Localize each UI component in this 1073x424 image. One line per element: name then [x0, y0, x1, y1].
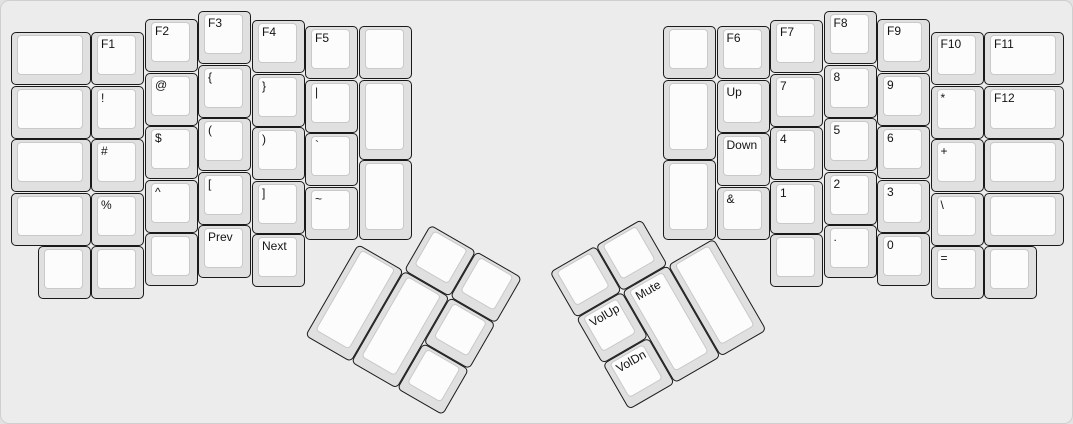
key-label: 0 [887, 237, 894, 253]
key-label: % [101, 197, 112, 213]
key-label: . [834, 229, 837, 245]
key-label: F12 [994, 90, 1015, 106]
keycap-face: [ [204, 175, 243, 215]
key-label: Prev [208, 229, 233, 245]
keycap-face [365, 83, 404, 150]
key-label: ~ [315, 191, 322, 207]
key-down[interactable]: Down [717, 133, 770, 186]
key-label: F2 [155, 23, 169, 39]
key-blank[interactable] [984, 193, 1064, 246]
key-f8[interactable]: F8 [824, 11, 877, 64]
keycap-face: 1 [776, 184, 815, 224]
key-label: 9 [887, 77, 894, 93]
key-blank[interactable] [359, 26, 412, 79]
key-backtick[interactable]: ` [305, 133, 358, 186]
key-label: ! [101, 90, 104, 106]
key-label: ( [208, 122, 212, 138]
keycap-face [669, 163, 708, 230]
keycap-face [17, 35, 83, 75]
key-f4[interactable]: F4 [252, 20, 305, 73]
keycap-face: ! [97, 89, 136, 129]
keycap-face: ^ [151, 183, 190, 223]
key-exclamation[interactable]: ! [91, 86, 144, 139]
key-label: F11 [994, 36, 1014, 52]
keycap-face: % [97, 196, 136, 236]
keycap-face: 6 [883, 129, 922, 169]
key-blank[interactable] [11, 32, 91, 85]
keycap-face: Prev [204, 228, 243, 268]
key-f10[interactable]: F10 [931, 32, 984, 85]
key-label: Up [727, 84, 742, 100]
keycap-face: F7 [776, 23, 815, 63]
key-label: 7 [780, 78, 787, 94]
key-at[interactable]: @ [145, 73, 198, 126]
key-label: F3 [208, 15, 222, 31]
keycap-face: \ [937, 196, 976, 236]
keycap-face: ( [204, 121, 243, 161]
keycap-face: 2 [830, 175, 869, 215]
keycap-face: * [937, 89, 976, 129]
keycap-face: 0 [883, 236, 922, 276]
keycap-face [990, 142, 1056, 182]
key-f1[interactable]: F1 [91, 32, 144, 85]
key-blank[interactable] [11, 86, 91, 139]
key-label: ` [315, 137, 319, 153]
key-blank-tall[interactable] [663, 160, 716, 240]
key-label: F10 [941, 36, 962, 52]
key-blank[interactable] [770, 234, 823, 287]
keycap-face [460, 257, 514, 311]
keycap-face [151, 236, 190, 276]
keycap-face: Down [723, 136, 762, 176]
key-left-bracket[interactable]: [ [198, 172, 251, 225]
key-tilde[interactable]: ~ [305, 187, 358, 240]
key-hash[interactable]: # [91, 139, 144, 192]
key-label: { [208, 69, 212, 85]
key-next[interactable]: Next [252, 234, 305, 287]
keycap-face [602, 226, 656, 280]
key-label: \ [941, 197, 944, 213]
keycap-face: 9 [883, 76, 922, 116]
keycap-face [365, 29, 404, 69]
key-label: Down [727, 137, 758, 153]
keycap-face: F11 [990, 35, 1056, 75]
keycap-face: ` [311, 136, 350, 176]
keycap-face: 4 [776, 130, 815, 170]
key-8[interactable]: 8 [824, 65, 877, 118]
key-right-bracket[interactable]: ] [252, 181, 305, 234]
keycap-face [990, 196, 1056, 236]
keycap-face: 7 [776, 77, 815, 117]
keycap-face: F5 [311, 29, 350, 69]
key-blank-tall[interactable] [359, 80, 412, 160]
key-blank[interactable] [145, 233, 198, 286]
keycap-face: ~ [311, 190, 350, 230]
key-6[interactable]: 6 [877, 126, 930, 179]
keycap-face [44, 249, 83, 289]
key-7[interactable]: 7 [770, 74, 823, 127]
key-2[interactable]: 2 [824, 172, 877, 225]
keycap-face: 5 [830, 121, 869, 161]
keycap-face: $ [151, 129, 190, 169]
keycap-face: F9 [883, 22, 922, 62]
key-1[interactable]: 1 [770, 181, 823, 234]
key-label: [ [208, 176, 211, 192]
key-label: Next [262, 238, 287, 254]
key-plus[interactable]: + [931, 139, 984, 192]
key-blank[interactable] [663, 26, 716, 79]
key-label: # [101, 143, 108, 159]
key-4[interactable]: 4 [770, 127, 823, 180]
key-f12[interactable]: F12 [984, 86, 1064, 139]
keycap-face: | [311, 83, 350, 123]
key-equals[interactable]: = [931, 246, 984, 299]
key-label: 1 [780, 185, 787, 201]
keycap-face: & [723, 190, 762, 230]
key-label: F8 [834, 15, 848, 31]
key-label: F6 [727, 30, 741, 46]
keycap-face [990, 249, 1029, 289]
keycap-face: # [97, 142, 136, 182]
keycap-face: { [204, 68, 243, 108]
keycap-face: F3 [204, 14, 243, 54]
key-asterisk[interactable]: * [931, 86, 984, 139]
keycap-face: . [830, 228, 869, 268]
key-label: @ [155, 77, 167, 93]
key-percent[interactable]: % [91, 193, 144, 246]
key-blank[interactable] [984, 139, 1064, 192]
keycap-face [17, 142, 83, 182]
key-9[interactable]: 9 [877, 73, 930, 126]
key-3[interactable]: 3 [877, 180, 930, 233]
keycap-face: @ [151, 76, 190, 116]
key-label: 5 [834, 122, 841, 138]
keycap-face: Next [258, 237, 297, 277]
key-label: & [727, 191, 735, 207]
key-f5[interactable]: F5 [305, 26, 358, 79]
keycap-face [365, 163, 404, 230]
key-right-paren[interactable]: ) [252, 127, 305, 180]
key-dollar[interactable]: $ [145, 126, 198, 179]
key-left-brace[interactable]: { [198, 65, 251, 118]
key-period[interactable]: . [824, 225, 877, 278]
key-blank-tall[interactable] [663, 80, 716, 160]
keycap-face: F10 [937, 35, 976, 75]
key-label: F9 [887, 23, 901, 39]
keycap-face [669, 83, 708, 150]
key-label: + [941, 143, 948, 159]
key-up[interactable]: Up [717, 80, 770, 133]
key-label: F5 [315, 30, 329, 46]
keycap-face: F8 [830, 14, 869, 54]
key-pipe[interactable]: | [305, 80, 358, 133]
key-label: 8 [834, 69, 841, 85]
key-label: F4 [262, 24, 276, 40]
key-left-paren[interactable]: ( [198, 118, 251, 171]
key-f3[interactable]: F3 [198, 11, 251, 64]
key-blank[interactable] [38, 246, 91, 299]
key-5[interactable]: 5 [824, 118, 877, 171]
key-label: 3 [887, 184, 894, 200]
key-label: 6 [887, 130, 894, 146]
key-blank-tall[interactable] [359, 160, 412, 240]
key-0[interactable]: 0 [877, 233, 930, 286]
key-blank[interactable] [91, 246, 144, 299]
key-ampersand[interactable]: & [717, 187, 770, 240]
keycap-face [414, 230, 468, 284]
key-label: F7 [780, 24, 794, 40]
keycap-face: } [258, 77, 297, 117]
keycap-face: Up [723, 83, 762, 123]
key-f2[interactable]: F2 [145, 19, 198, 72]
keycap-face: ) [258, 130, 297, 170]
keycap-face [17, 196, 83, 236]
key-label: $ [155, 130, 162, 146]
key-blank[interactable] [984, 246, 1037, 299]
keycap-face: F6 [723, 29, 762, 69]
key-f7[interactable]: F7 [770, 20, 823, 73]
keycap-face [669, 29, 708, 69]
key-label: } [262, 78, 266, 94]
key-right-brace[interactable]: } [252, 74, 305, 127]
key-label: ] [262, 185, 265, 201]
key-prev[interactable]: Prev [198, 225, 251, 278]
key-label: | [315, 84, 318, 100]
key-label: 4 [780, 131, 787, 147]
keycap-face: F1 [97, 35, 136, 75]
keycap-face: ] [258, 184, 297, 224]
key-label: ^ [155, 184, 161, 200]
keycap-face: F4 [258, 23, 297, 63]
key-label: = [941, 250, 948, 266]
key-label: F1 [101, 36, 115, 52]
keycap-face [17, 89, 83, 129]
keycap-face: + [937, 142, 976, 182]
key-f6[interactable]: F6 [717, 26, 770, 79]
key-caret[interactable]: ^ [145, 180, 198, 233]
keycap-face: = [937, 249, 976, 289]
key-f9[interactable]: F9 [877, 19, 930, 72]
keycap-face: F2 [151, 22, 190, 62]
key-blank[interactable] [11, 193, 91, 246]
keycap-face [776, 237, 815, 277]
key-backslash[interactable]: \ [931, 193, 984, 246]
keyboard-layout-canvas: F1F2F3F4F5!@{}|#$()`%^[]~PrevNextF6F7F8F… [0, 0, 1073, 424]
keycap-face: F12 [990, 89, 1056, 129]
key-label: * [941, 90, 946, 106]
key-f11[interactable]: F11 [984, 32, 1064, 85]
key-label: 2 [834, 176, 841, 192]
key-label: ) [262, 131, 266, 147]
keycap-face [556, 252, 610, 306]
keycap-face: 8 [830, 68, 869, 108]
keycap-face [97, 249, 136, 289]
keycap-face: 3 [883, 183, 922, 223]
key-blank[interactable] [11, 139, 91, 192]
